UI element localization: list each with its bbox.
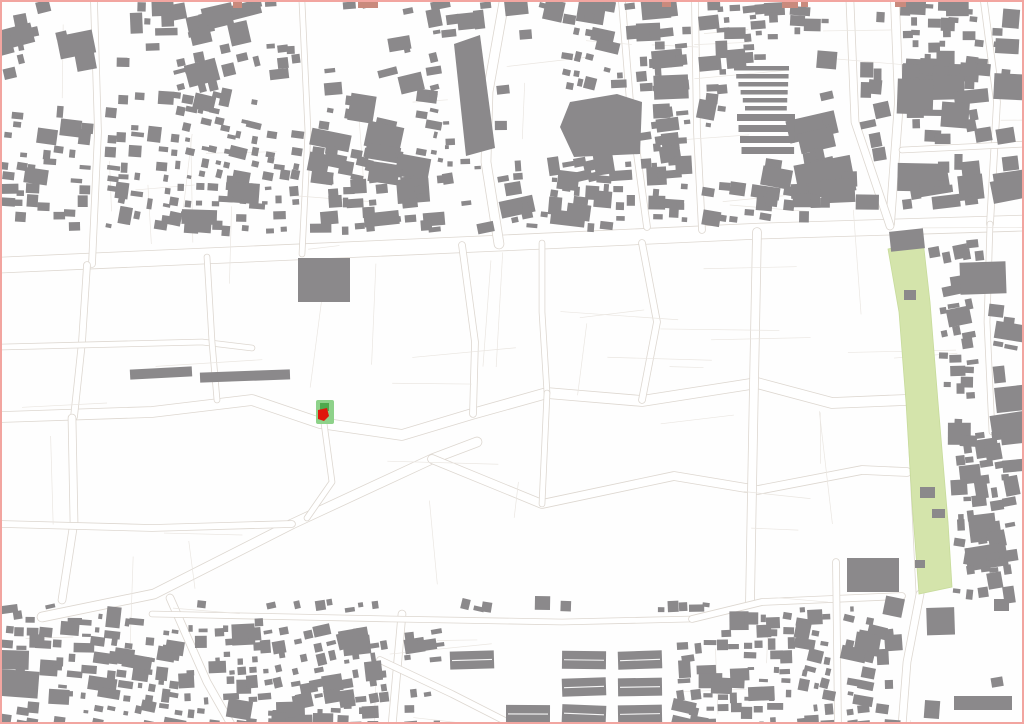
selected-building-marker[interactable]	[316, 400, 334, 424]
map-viewport	[0, 0, 1024, 724]
city-map-canvas	[2, 2, 1024, 724]
park-top-building	[889, 228, 925, 251]
